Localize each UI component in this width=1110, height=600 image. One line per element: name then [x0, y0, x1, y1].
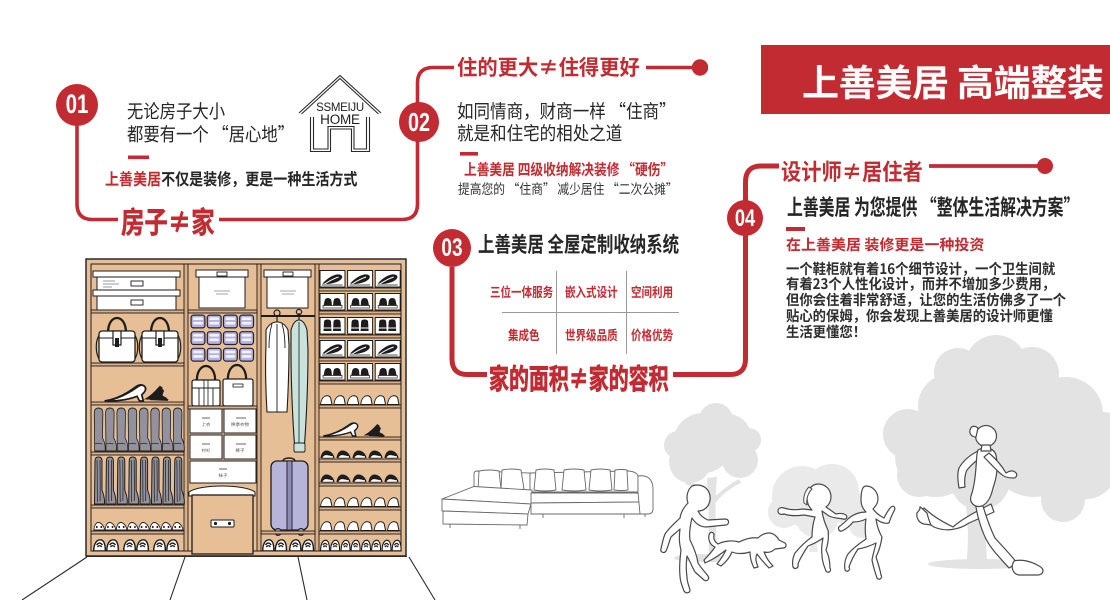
svg-text:HOME: HOME	[320, 112, 360, 127]
svg-text:裤子: 裤子	[236, 448, 245, 454]
svg-text:换季衣物: 换季衣物	[231, 422, 249, 428]
svg-text:袜子: 袜子	[219, 473, 228, 479]
svg-text:衬衫: 衬衫	[202, 448, 211, 454]
svg-text:上衣: 上衣	[202, 422, 211, 428]
